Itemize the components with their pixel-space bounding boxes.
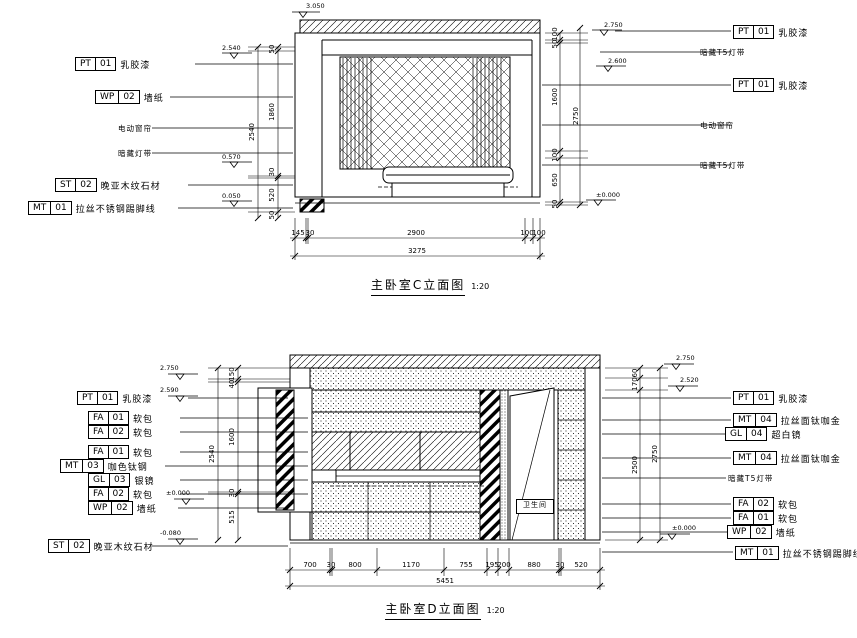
material-tag: GL03 银镜 (88, 473, 154, 487)
tag-text: 超白镜 (771, 428, 801, 441)
dim-label: 880 (527, 561, 540, 569)
tag-text: 乳胶漆 (778, 26, 808, 39)
material-tag: ST02 晚亚木纹石材 (48, 539, 154, 553)
material-tag: FA01 软包 (733, 511, 798, 525)
material-tag: FA02 软包 (733, 497, 798, 511)
tag-code: MT (29, 202, 50, 214)
dim-label: 170 (631, 377, 639, 390)
tag-code: MT (734, 414, 755, 426)
dim-label: 100 (551, 148, 559, 161)
view-title: 主卧室D立面图1:20 (360, 598, 530, 617)
tag-num: 01 (753, 392, 773, 404)
tag-text: 软包 (133, 446, 153, 459)
dim-label: 50 (268, 211, 276, 220)
tag-num: 01 (95, 58, 115, 70)
material-tag: FA02 软包 (88, 425, 153, 439)
dim-label: 2500 (631, 456, 639, 474)
tag-text: 软包 (133, 426, 153, 439)
dim-label: 2900 (407, 229, 425, 237)
tag-num: 04 (746, 428, 766, 440)
tag-text: 软包 (778, 512, 798, 525)
elevation-marker: -0.080 (160, 529, 181, 537)
tag-code: PT (78, 392, 97, 404)
tag-code: FA (734, 498, 753, 510)
tag-code: FA (89, 446, 108, 458)
tag-num: 01 (753, 79, 773, 91)
tag-num: 02 (108, 426, 128, 438)
tag-text: 墙纸 (776, 526, 796, 539)
view-title: 主卧室C立面图1:20 (345, 274, 515, 293)
note-label: 暗藏T5灯带 (700, 160, 745, 171)
tag-num: 02 (75, 179, 95, 191)
tag-text: 拉丝不锈钢踢脚线 (76, 202, 156, 215)
dim-label: 100 (532, 229, 545, 237)
tag-text: 软包 (133, 488, 153, 501)
dim-total-label: 2540 (248, 123, 256, 141)
tag-code: WP (96, 91, 118, 103)
dim-label: 520 (268, 188, 276, 201)
tag-num: 02 (108, 488, 128, 500)
dim-label: 650 (551, 173, 559, 186)
view-scale: 1:20 (471, 282, 489, 291)
tag-text: 软包 (133, 412, 153, 425)
tag-code: FA (734, 512, 753, 524)
material-tag: WP02 墙纸 (88, 501, 157, 515)
tag-text: 软包 (778, 498, 798, 511)
tag-code: GL (89, 474, 109, 486)
dim-label: 1860 (268, 103, 276, 121)
tag-text: 晚亚木纹石材 (101, 179, 161, 192)
tag-text: 墙纸 (144, 91, 164, 104)
dim-total-label: 2540 (208, 445, 216, 463)
tag-code: WP (89, 502, 111, 514)
tag-code: PT (734, 26, 753, 38)
drawing-sheet: PT01 乳胶漆 WP02 墙纸 电动窗帘 暗藏灯带 ST02 晚亚木纹石材 M… (0, 0, 857, 638)
elevation-marker: 2.600 (608, 57, 627, 65)
material-tag: PT01 乳胶漆 (733, 78, 808, 92)
dim-label: 1600 (551, 88, 559, 106)
dim-label: 145 (291, 229, 304, 237)
tag-code: WP (728, 526, 750, 538)
dim-label: 50 (551, 40, 559, 49)
dim-label: 50 (551, 200, 559, 209)
view-title-text: 主卧室D立面图 (385, 602, 480, 620)
dim-label: 755 (459, 561, 472, 569)
tag-num: 01 (753, 26, 773, 38)
tag-text: 拉丝不锈钢踢脚线 (783, 547, 857, 560)
tag-text: 乳胶漆 (778, 79, 808, 92)
door-label: 卫生间 (516, 499, 554, 514)
material-tag: WP02 墙纸 (727, 525, 796, 539)
tag-text: 乳胶漆 (122, 392, 152, 405)
material-tag: FA02 软包 (88, 487, 153, 501)
material-tag: PT01 乳胶漆 (733, 391, 808, 405)
tag-num: 02 (111, 502, 131, 514)
dim-label: 30 (306, 229, 315, 237)
tag-text: 晚亚木纹石材 (94, 540, 154, 553)
tag-num: 01 (108, 412, 128, 424)
tag-num: 01 (753, 512, 773, 524)
elevation-marker: 2.750 (160, 364, 179, 372)
elevation-marker: 2.520 (680, 376, 699, 384)
material-tag: FA01 软包 (88, 445, 153, 459)
tag-code: MT (736, 547, 757, 559)
dim-label: 1600 (228, 428, 236, 446)
tag-text: 咖色钛钢 (108, 460, 148, 473)
tag-text: 拉丝面钛咖金 (781, 414, 841, 427)
material-tag: PT01 乳胶漆 (733, 25, 808, 39)
tag-num: 01 (50, 202, 70, 214)
tag-text: 墙纸 (137, 502, 157, 515)
note-label: 暗藏T5灯带 (728, 473, 773, 484)
tag-num: 01 (108, 446, 128, 458)
tag-num: 04 (755, 414, 775, 426)
tag-code: PT (76, 58, 95, 70)
tag-num: 03 (109, 474, 129, 486)
dim-total-label: 5451 (436, 577, 454, 585)
tag-code: MT (734, 452, 755, 464)
elevation-marker: 2.750 (604, 21, 623, 29)
view-title-text: 主卧室C立面图 (371, 278, 465, 296)
dim-label: 30 (268, 168, 276, 177)
material-tag: MT04 拉丝面钛咖金 (733, 451, 841, 465)
dim-label: 30 (556, 561, 565, 569)
note-label: 暗藏灯带 (118, 148, 152, 159)
elevation-marker: 2.590 (160, 386, 179, 394)
elevation-marker: 3.050 (306, 2, 325, 10)
material-tag: ST02 晚亚木纹石材 (55, 178, 161, 192)
tag-code: MT (61, 460, 82, 472)
material-tag: WP02 墙纸 (95, 90, 164, 104)
note-label: 暗藏T5灯带 (700, 47, 745, 58)
elevation-marker: ±0.000 (596, 191, 620, 199)
elevation-marker: ±0.000 (166, 489, 190, 497)
note-label: 电动窗帘 (700, 120, 734, 131)
elevation-marker: 0.570 (222, 153, 241, 161)
tag-code: ST (56, 179, 75, 191)
tag-num: 02 (68, 540, 88, 552)
dim-total-label: 2750 (572, 107, 580, 125)
tag-code: GL (726, 428, 746, 440)
tag-code: ST (49, 540, 68, 552)
dim-total-label: 3275 (408, 247, 426, 255)
material-tag: MT03 咖色钛钢 (60, 459, 148, 473)
dim-label: 40 (228, 380, 236, 389)
elevation-marker: 2.540 (222, 44, 241, 52)
dim-label: 800 (348, 561, 361, 569)
tag-num: 02 (753, 498, 773, 510)
tag-code: PT (734, 392, 753, 404)
tag-num: 02 (750, 526, 770, 538)
dim-label: 1170 (402, 561, 420, 569)
dim-label: 515 (228, 510, 236, 523)
tag-num: 04 (755, 452, 775, 464)
note-label: 电动窗帘 (118, 123, 152, 134)
dim-label: 520 (574, 561, 587, 569)
dim-total-label: 2750 (651, 445, 659, 463)
tag-text: 乳胶漆 (120, 58, 150, 71)
tag-code: PT (734, 79, 753, 91)
view-scale: 1:20 (487, 606, 505, 615)
dim-label: 700 (303, 561, 316, 569)
tag-num: 02 (118, 91, 138, 103)
material-tag: GL04 超白镜 (725, 427, 801, 441)
material-tag: MT01 拉丝不锈钢踢脚线 (28, 201, 156, 215)
elevation-marker: 2.750 (676, 354, 695, 362)
tag-code: FA (89, 412, 108, 424)
tag-text: 乳胶漆 (778, 392, 808, 405)
material-tag: FA01 软包 (88, 411, 153, 425)
dim-label: 30 (228, 489, 236, 498)
material-tag: PT01 乳胶漆 (75, 57, 150, 71)
elevation-marker: ±0.000 (672, 524, 696, 532)
material-tag: MT04 拉丝面钛咖金 (733, 413, 841, 427)
tag-code: FA (89, 488, 108, 500)
dim-label: 200 (497, 561, 510, 569)
tag-num: 03 (82, 460, 102, 472)
tag-num: 01 (97, 392, 117, 404)
material-tag: MT01 拉丝不锈钢踢脚线 (735, 546, 857, 560)
tag-text: 拉丝面钛咖金 (781, 452, 841, 465)
dim-label: 50 (268, 45, 276, 54)
dim-label: 60 (631, 369, 639, 378)
dim-label: 30 (327, 561, 336, 569)
tag-text: 银镜 (134, 474, 154, 487)
tag-code: FA (89, 426, 108, 438)
material-tag: PT01 乳胶漆 (77, 391, 152, 405)
elevation-marker: 0.050 (222, 192, 241, 200)
tag-num: 01 (757, 547, 777, 559)
